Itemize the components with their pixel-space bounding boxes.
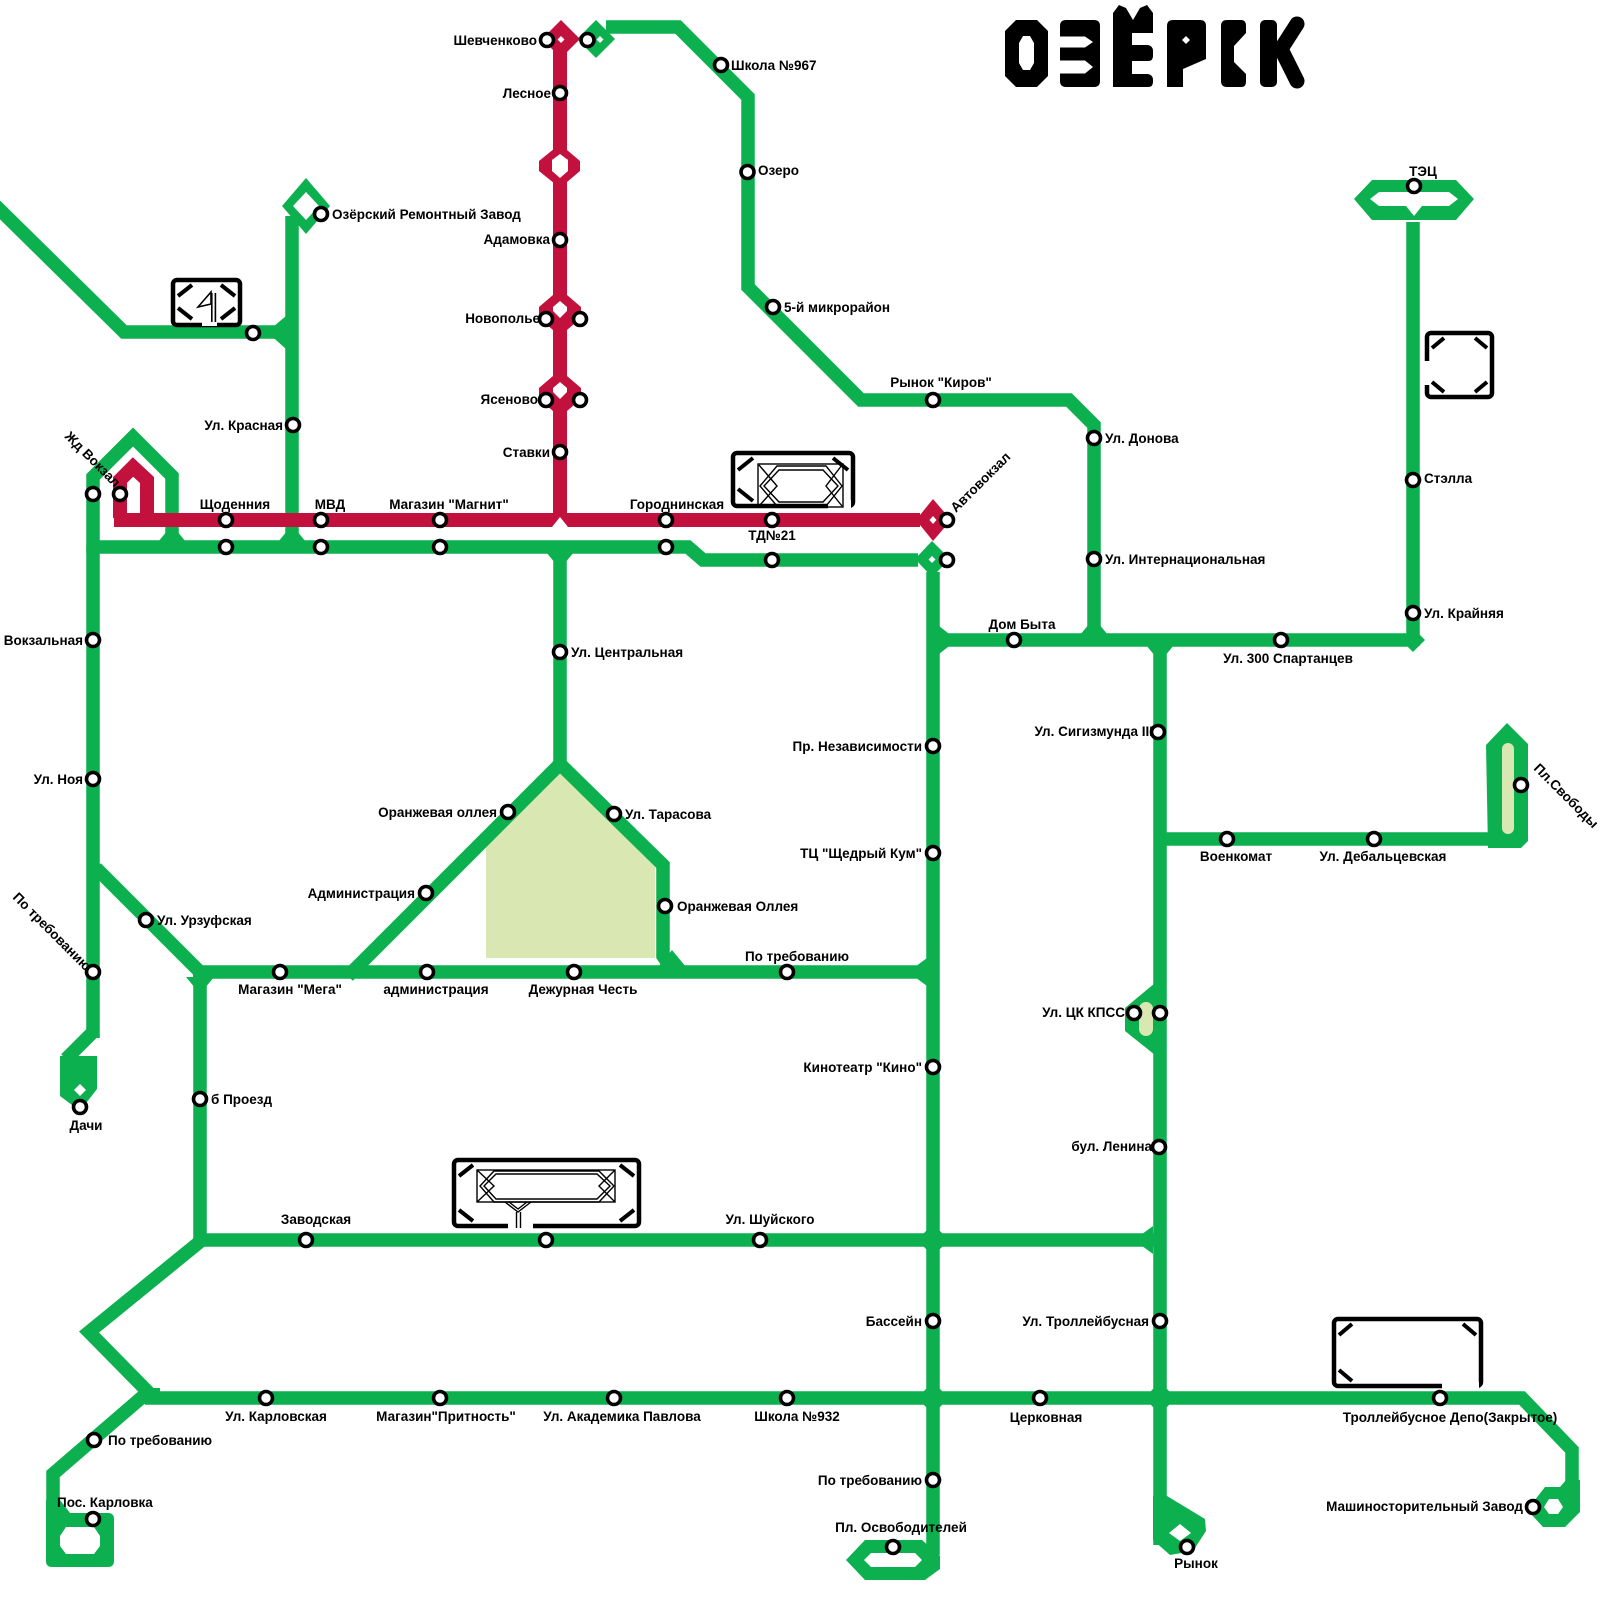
svg-text:Ул. Крайняя: Ул. Крайняя — [1424, 606, 1504, 621]
svg-text:Ул. Центральная: Ул. Центральная — [571, 645, 683, 660]
svg-text:Рынок "Киров": Рынок "Киров" — [890, 375, 992, 390]
svg-text:Оранжевая оллея: Оранжевая оллея — [378, 805, 497, 820]
svg-text:Щоденния: Щоденния — [200, 497, 270, 512]
svg-text:Новополье: Новополье — [465, 311, 540, 326]
svg-text:Кинотеатр "Кино": Кинотеатр "Кино" — [803, 1060, 922, 1075]
svg-text:Школа №967: Школа №967 — [731, 58, 816, 73]
svg-text:Озёрский Ремонтный Завод: Озёрский Ремонтный Завод — [332, 207, 521, 222]
svg-text:Адамовка: Адамовка — [484, 232, 551, 247]
svg-text:По требованию: По требованию — [745, 949, 849, 964]
svg-text:Озеро: Озеро — [758, 163, 799, 178]
svg-text:Шевченково: Шевченково — [453, 33, 537, 48]
svg-text:Ул. Тарасова: Ул. Тарасова — [625, 807, 712, 822]
svg-text:5-й микрорайон: 5-й микрорайон — [784, 300, 890, 315]
svg-text:Ул. Академика Павлова: Ул. Академика Павлова — [543, 1409, 701, 1424]
svg-text:Ул. Шуйского: Ул. Шуйского — [725, 1212, 814, 1227]
svg-text:Ул. Красная: Ул. Красная — [204, 418, 283, 433]
svg-text:Дежурная Честь: Дежурная Честь — [529, 982, 638, 997]
svg-text:б Проезд: б Проезд — [211, 1092, 273, 1107]
svg-text:Пос. Карловка: Пос. Карловка — [57, 1495, 153, 1510]
svg-text:Военкомат: Военкомат — [1200, 849, 1273, 864]
svg-text:Ул. 300 Спартанцев: Ул. 300 Спартанцев — [1223, 651, 1353, 666]
svg-text:Оранжевая Оллея: Оранжевая Оллея — [677, 899, 798, 914]
svg-text:Церковная: Церковная — [1010, 1410, 1082, 1425]
svg-text:Администрация: Администрация — [308, 886, 415, 901]
svg-text:Ул. Сигизмунда III: Ул. Сигизмунда III — [1034, 724, 1153, 739]
svg-text:Ул. ЦК КПСС: Ул. ЦК КПСС — [1042, 1005, 1125, 1020]
svg-text:Ул. Карловская: Ул. Карловская — [225, 1409, 327, 1424]
svg-text:Ул. Донова: Ул. Донова — [1105, 431, 1179, 446]
svg-text:Ясеново: Ясеново — [481, 392, 539, 407]
svg-text:Машиносторительный Завод: Машиносторительный Завод — [1326, 1499, 1523, 1514]
svg-text:Ул. Троллейбусная: Ул. Троллейбусная — [1022, 1314, 1149, 1329]
svg-text:Вокзальная: Вокзальная — [4, 633, 83, 648]
svg-text:По требованию: По требованию — [818, 1473, 922, 1488]
svg-text:По требованию: По требованию — [108, 1433, 212, 1448]
svg-text:МВД: МВД — [315, 497, 346, 512]
svg-text:ТД№21: ТД№21 — [748, 528, 796, 543]
svg-text:Ул. Дебальцевская: Ул. Дебальцевская — [1320, 849, 1447, 864]
svg-text:Стэлла: Стэлла — [1424, 471, 1473, 486]
svg-text:ТЭЦ: ТЭЦ — [1409, 164, 1437, 179]
svg-text:бул. Ленина: бул. Ленина — [1071, 1139, 1152, 1154]
svg-text:Лесное: Лесное — [503, 86, 552, 101]
svg-text:Магазин"Притность": Магазин"Притность" — [376, 1409, 516, 1424]
svg-text:Ул. Интернациональная: Ул. Интернациональная — [1105, 552, 1265, 567]
svg-text:Дом Быта: Дом Быта — [989, 617, 1056, 632]
svg-text:администрация: администрация — [383, 982, 488, 997]
svg-text:Ул. Урзуфская: Ул. Урзуфская — [157, 913, 252, 928]
svg-text:Ставки: Ставки — [503, 445, 550, 460]
svg-text:Магазин "Магнит": Магазин "Магнит" — [389, 497, 509, 512]
svg-text:ТЦ "Щедрый Кум": ТЦ "Щедрый Кум" — [800, 846, 922, 861]
svg-text:Заводская: Заводская — [281, 1212, 351, 1227]
svg-text:Пр. Независимости: Пр. Независимости — [793, 739, 922, 754]
svg-text:Пл. Освободителей: Пл. Освободителей — [835, 1520, 967, 1535]
svg-text:Школа №932: Школа №932 — [754, 1409, 839, 1424]
svg-text:Магазин "Мега": Магазин "Мега" — [238, 982, 342, 997]
svg-text:Ул. Ноя: Ул. Ноя — [34, 772, 83, 787]
svg-text:Бассейн: Бассейн — [866, 1314, 922, 1329]
svg-text:Троллейбусное Депо(Закрытое): Троллейбусное Депо(Закрытое) — [1343, 1410, 1558, 1425]
svg-text:Рынок: Рынок — [1174, 1556, 1218, 1571]
svg-text:Дачи: Дачи — [70, 1118, 103, 1133]
svg-text:Городнинская: Городнинская — [630, 497, 724, 512]
